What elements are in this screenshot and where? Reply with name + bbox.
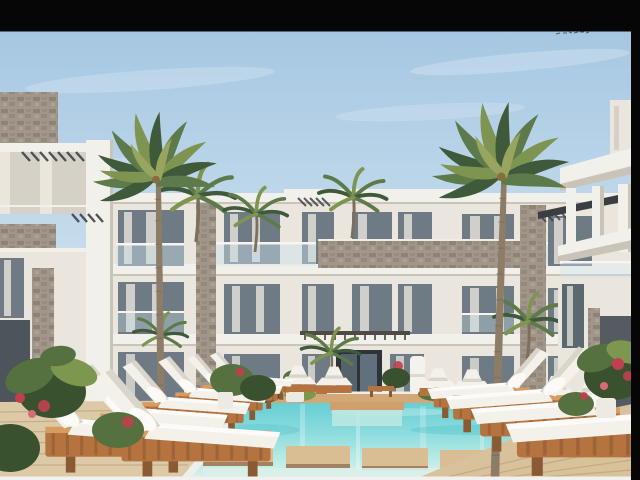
letterbox-top-bar — [0, 0, 640, 32]
in-pool-platform — [330, 402, 404, 426]
letterbox-right-bar — [631, 0, 640, 480]
resort-render — [0, 0, 640, 480]
screenshot-root — [0, 0, 640, 480]
render-scene — [0, 31, 640, 478]
bottom-strip — [0, 477, 631, 480]
